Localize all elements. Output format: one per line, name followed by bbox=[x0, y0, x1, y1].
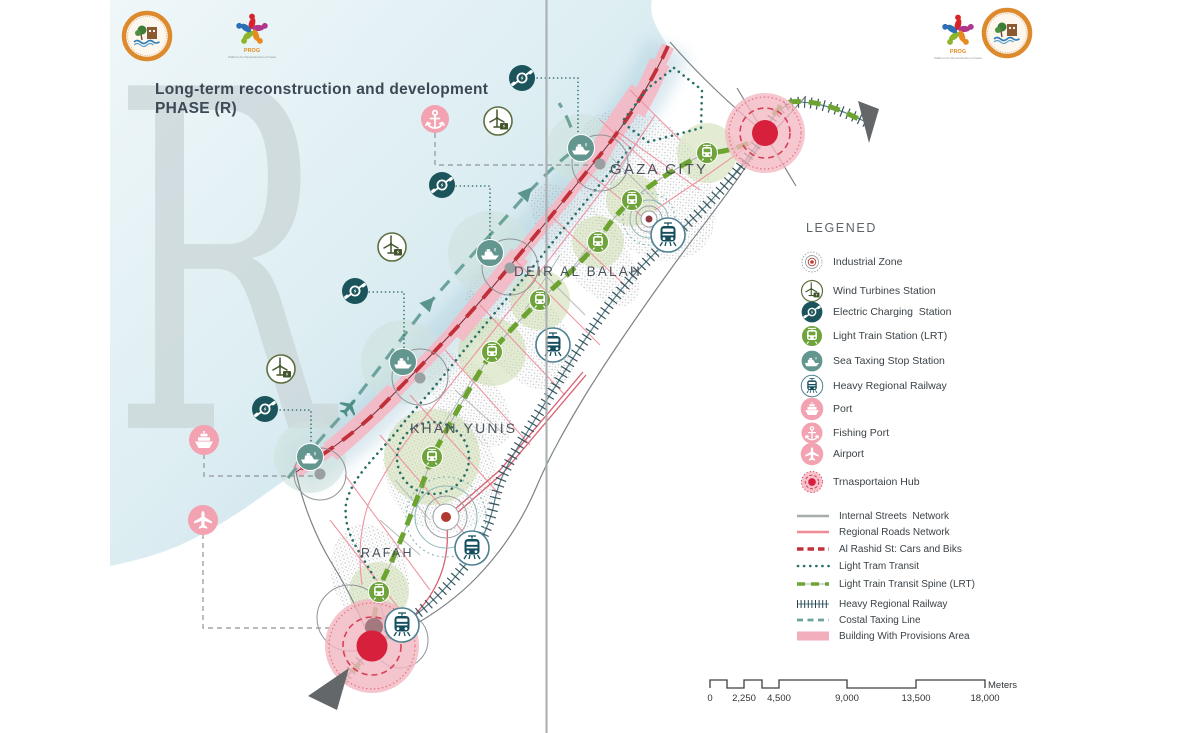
legend-point-items: Industrial Zone Wind Turbines Station El… bbox=[800, 251, 1050, 496]
port-icon bbox=[800, 397, 824, 421]
coastal-taxi-swatch bbox=[795, 614, 831, 626]
scale-unit-label: Meters bbox=[988, 680, 1017, 691]
map-poster: R bbox=[0, 0, 1190, 733]
heavy-railway-station-icon bbox=[800, 374, 824, 398]
legend-item-heavy-railway-line: Heavy Regional Railway bbox=[795, 596, 947, 612]
title-line-1: Long-term reconstruction and development bbox=[155, 80, 488, 99]
legend-item-light-tram: Light Tram Transit bbox=[795, 558, 919, 574]
light-tram-line bbox=[795, 560, 831, 572]
northeast-arrow bbox=[858, 101, 879, 143]
legend-item-port: Port bbox=[800, 398, 852, 420]
legend-item-electric-charging: Electric Charging Station bbox=[800, 301, 951, 323]
svg-text:Platform for Reconstruction of: Platform for Reconstruction of Gaza bbox=[934, 56, 982, 60]
page-title: Long-term reconstruction and development… bbox=[155, 80, 488, 118]
label-rafah: RAFAH bbox=[361, 546, 414, 560]
svg-text:PROG: PROG bbox=[244, 48, 260, 54]
legend-item-al-rashid: Al Rashid St: Cars and Biks bbox=[795, 541, 962, 557]
light-train-station-icon bbox=[800, 324, 824, 348]
svg-text:PROG: PROG bbox=[950, 49, 966, 55]
transportation-hub-north bbox=[725, 93, 805, 173]
legend-item-light-train-station: Light Train Station (LRT) bbox=[800, 325, 947, 347]
label-khan-yunis: KHAN YUNIS bbox=[410, 420, 517, 436]
legend-item-internal-streets: Internal Streets Network bbox=[795, 508, 949, 524]
legend-item-regional-roads: Regional Roads Network bbox=[795, 524, 950, 540]
legend-title: LEGENED bbox=[806, 221, 877, 235]
southwest-arrow bbox=[308, 668, 349, 710]
municipality-logo bbox=[984, 10, 1030, 56]
legend-item-heavy-railway-station: Heavy Regional Railway bbox=[800, 375, 947, 397]
legend-item-industrial-zone: Industrial Zone bbox=[800, 251, 902, 273]
legend-line-items: Internal Streets Network Regional Roads … bbox=[795, 508, 1045, 648]
legend-item-provisions-area: Building With Provisions Area bbox=[795, 628, 970, 644]
lrt-spine-line bbox=[795, 578, 831, 590]
legend-item-sea-taxi: Sea Taxing Stop Station bbox=[800, 350, 945, 372]
al-rashid-line bbox=[795, 543, 831, 555]
airport-icon bbox=[800, 442, 824, 466]
legend-item-wind-turbines: Wind Turbines Station bbox=[800, 280, 936, 302]
legend-item-airport: Airport bbox=[800, 443, 864, 465]
legend-item-coastal-taxi: Costal Taxing Line bbox=[795, 612, 921, 628]
legend-item-fishing-port: Fishing Port bbox=[800, 422, 889, 444]
scale-tick-3: 9,000 bbox=[825, 693, 869, 704]
municipality-logo bbox=[124, 13, 170, 59]
scale-bar bbox=[710, 680, 985, 688]
industrial-zone-icon bbox=[800, 250, 824, 274]
transportation-hub-icon bbox=[800, 470, 824, 494]
prog-logo: PROG Platform for Reconstruction of Gaza bbox=[934, 15, 982, 60]
airport-marker bbox=[188, 505, 218, 535]
internal-streets-line bbox=[795, 510, 831, 522]
legend-item-lrt-spine: Light Train Transit Spine (LRT) bbox=[795, 576, 975, 592]
label-gaza-city: GAZA CITY bbox=[610, 161, 708, 178]
label-deir-al-balah: DEIR AL BALAH bbox=[514, 264, 642, 279]
heavy-railway-line bbox=[795, 598, 831, 610]
sea-taxi-stop-icon bbox=[800, 349, 824, 373]
title-line-2: PHASE (R) bbox=[155, 99, 488, 118]
scale-tick-2: 4,500 bbox=[757, 693, 801, 704]
port-marker bbox=[189, 425, 219, 455]
svg-text:Platform for Reconstruction of: Platform for Reconstruction of Gaza bbox=[228, 55, 276, 59]
provisions-area-swatch bbox=[795, 630, 831, 642]
scale-tick-5: 18,000 bbox=[963, 693, 1007, 704]
legend-item-transportation-hub: Trnasportaion Hub bbox=[800, 471, 920, 493]
electric-charging-icon bbox=[800, 300, 824, 324]
regional-roads-line bbox=[795, 526, 831, 538]
scale-tick-4: 13,500 bbox=[894, 693, 938, 704]
